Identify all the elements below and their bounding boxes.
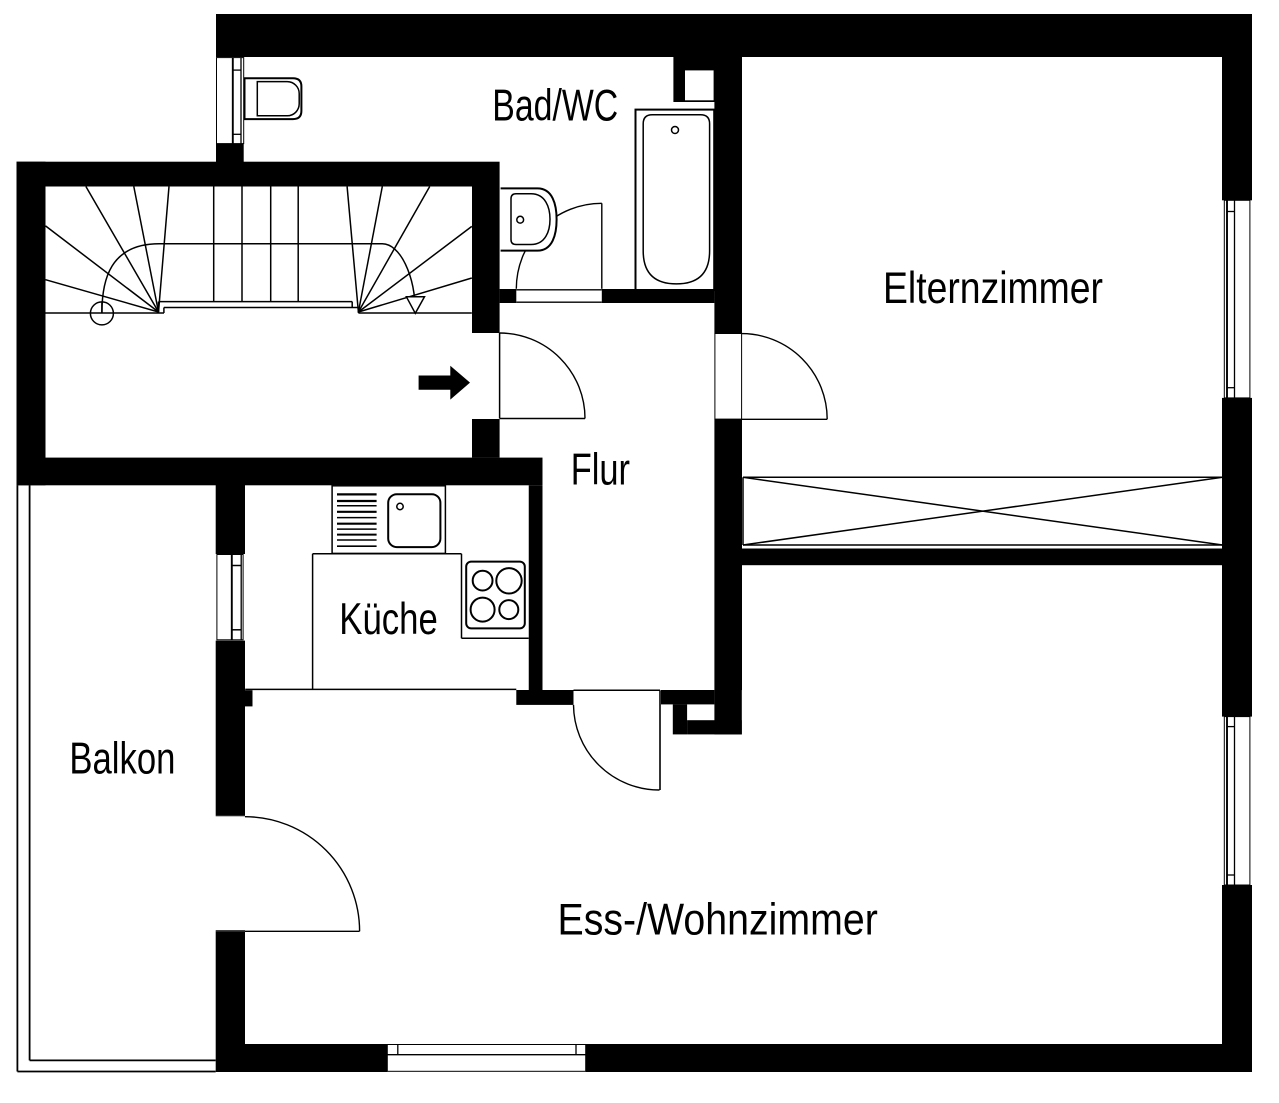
svg-text:Balkon: Balkon bbox=[69, 735, 175, 784]
svg-text:Küche: Küche bbox=[339, 595, 438, 644]
svg-text:Ess-/Wohnzimmer: Ess-/Wohnzimmer bbox=[558, 896, 879, 945]
svg-text:Bad/WC: Bad/WC bbox=[492, 82, 618, 131]
svg-text:Flur: Flur bbox=[571, 445, 630, 494]
svg-text:Elternzimmer: Elternzimmer bbox=[883, 264, 1103, 313]
